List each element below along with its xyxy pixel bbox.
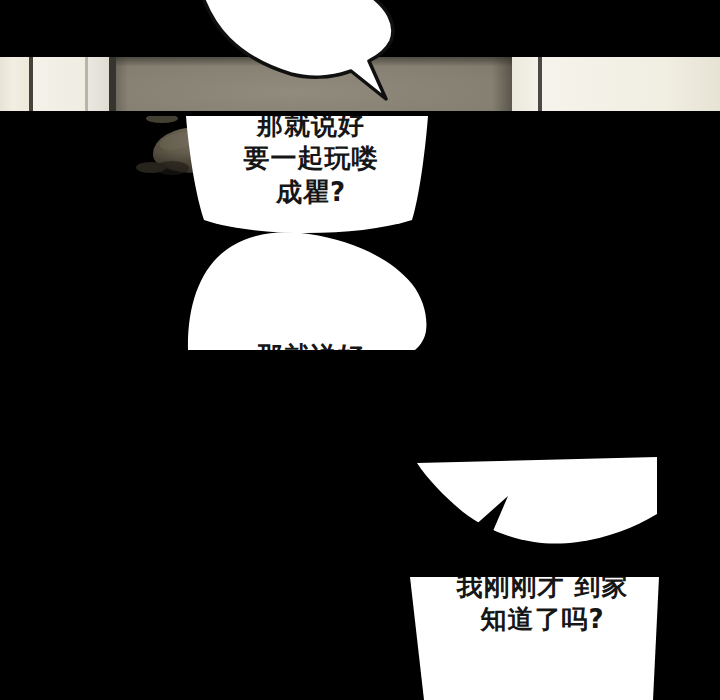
- comic-page: 那就说好 要一起玩喽 成瞿? 那就说好 我刚刚才 到家 知道了吗?: [0, 0, 720, 700]
- speech-bubble-4: [417, 457, 657, 544]
- speech-bubble-2-text: 那就说好 要一起玩喽 成瞿?: [186, 116, 428, 233]
- bubble-2-line-2: 要一起玩喽: [190, 145, 428, 171]
- speech-bubble-top: [199, 0, 393, 99]
- bubble-2-line-1: 那就说好: [190, 116, 428, 138]
- bubble-5-line-2: 知道了吗?: [418, 606, 659, 632]
- speech-bubble-3-text-clipped: 那就说好: [188, 232, 428, 350]
- bubble-3-line-1: 那就说好: [191, 343, 428, 350]
- speech-bubble-5-text: 我刚刚才 到家 知道了吗?: [410, 577, 659, 700]
- bubble-2-line-3: 成瞿?: [190, 179, 428, 205]
- bubble-5-line-1: 我刚刚才 到家: [418, 577, 659, 599]
